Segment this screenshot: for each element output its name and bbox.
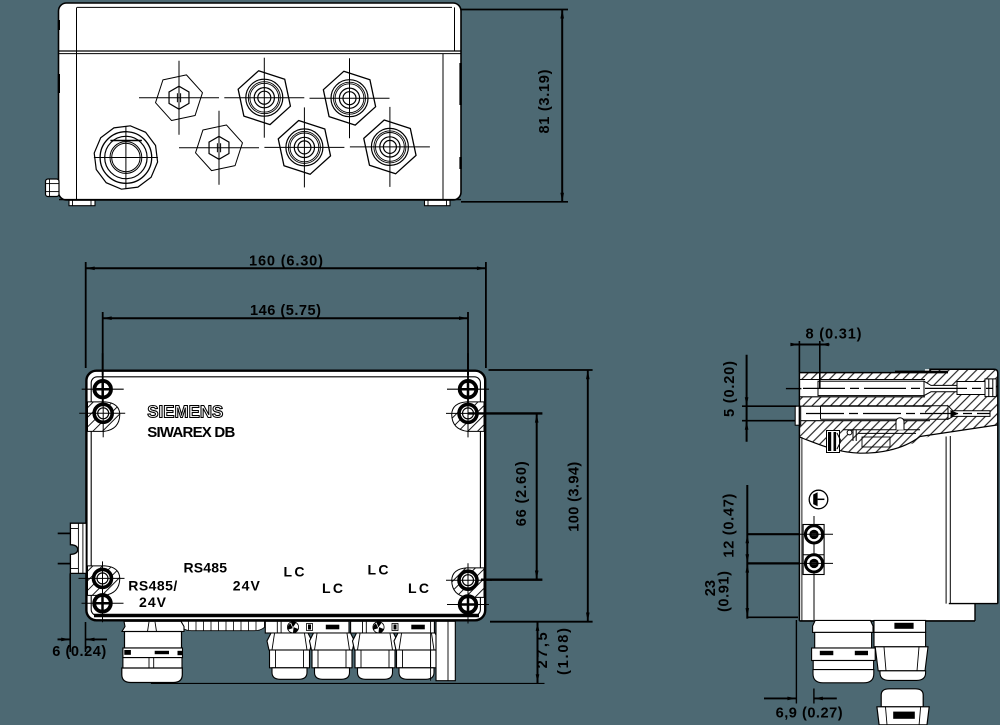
svg-text:81 (3.19): 81 (3.19)	[537, 69, 553, 133]
svg-text:6 (0.24): 6 (0.24)	[52, 644, 106, 660]
svg-text:LC: LC	[284, 564, 305, 580]
svg-text:100 (3.94): 100 (3.94)	[567, 462, 583, 532]
svg-text:SIEMENS: SIEMENS	[147, 402, 223, 422]
svg-text:146 (5.75): 146 (5.75)	[250, 303, 321, 319]
svg-text:5 (0.20): 5 (0.20)	[722, 361, 738, 417]
svg-text:(0.91): (0.91)	[717, 571, 733, 612]
svg-text:160 (6.30): 160 (6.30)	[249, 253, 323, 269]
svg-text:LC: LC	[322, 580, 343, 596]
svg-text:LC: LC	[368, 562, 389, 578]
svg-text:SIWAREX DB: SIWAREX DB	[147, 424, 235, 441]
svg-text:8 (0.31): 8 (0.31)	[806, 326, 862, 342]
svg-text:12 (0.47): 12 (0.47)	[722, 493, 738, 557]
svg-text:24V: 24V	[233, 578, 261, 594]
svg-text:6,9 (0.27): 6,9 (0.27)	[776, 706, 843, 722]
svg-text:24V: 24V	[139, 594, 167, 610]
svg-text:LC: LC	[408, 580, 429, 596]
svg-text:66 (2.60): 66 (2.60)	[514, 461, 530, 526]
svg-text:RS485/: RS485/	[128, 578, 177, 594]
svg-text:RS485: RS485	[184, 560, 228, 576]
svg-text:(1.08): (1.08)	[556, 628, 572, 675]
svg-text:27,5: 27,5	[535, 632, 551, 668]
